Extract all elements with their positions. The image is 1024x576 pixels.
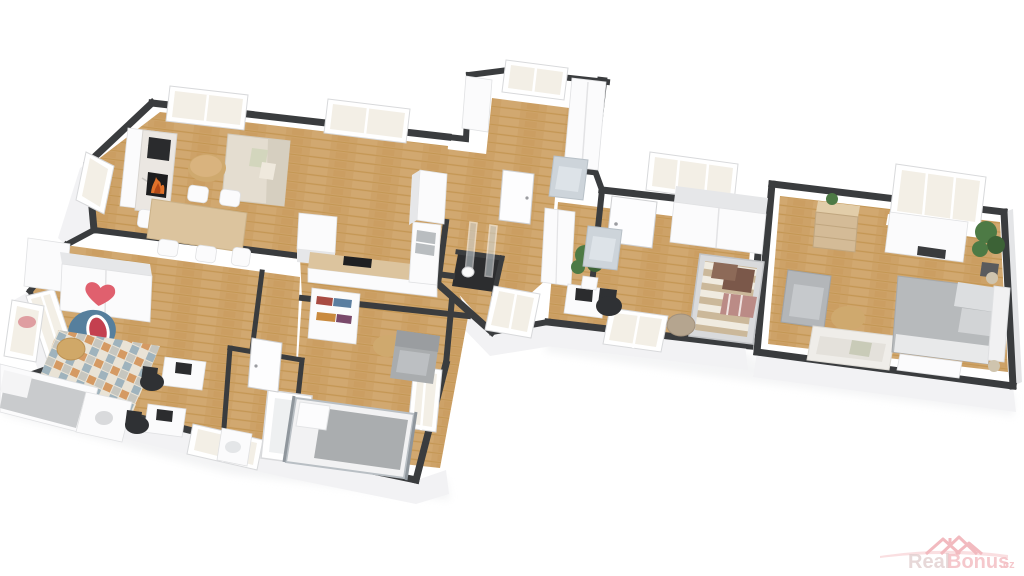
wardrobe-heart <box>60 252 152 322</box>
dresser <box>813 193 860 252</box>
foot-unit-cutout <box>95 411 113 425</box>
fridge-column-front <box>417 170 447 224</box>
watermark-brand-prefix: Real <box>908 551 950 573</box>
dining-chair <box>219 189 241 208</box>
watermark: Real Bonus .cz <box>880 537 1015 573</box>
chair-2-seat <box>125 416 149 434</box>
door-handle <box>254 364 257 367</box>
basin-bowl <box>225 441 241 453</box>
striped-daybed <box>689 254 764 344</box>
hall-door-1 <box>499 170 534 224</box>
dresser-plant <box>826 193 838 205</box>
bed-pillow <box>296 402 330 430</box>
door-handle <box>614 222 618 226</box>
armchair-cushion <box>589 236 616 262</box>
chair-1-seat <box>140 373 164 391</box>
daybed-pillow-brown2 <box>711 262 738 281</box>
wall-dressing-top <box>469 70 508 75</box>
coffee-table-top <box>190 155 222 177</box>
bathroom-door <box>248 338 282 392</box>
plant-pot <box>581 276 598 290</box>
office-monitor <box>575 288 593 302</box>
round-table <box>831 306 865 330</box>
window-dressing <box>502 60 568 100</box>
night-lamp-2 <box>988 360 1000 372</box>
double-bed <box>892 272 1010 378</box>
dresser-front <box>813 212 858 252</box>
night-lamp-1 <box>986 272 998 284</box>
dining-chair <box>231 247 251 267</box>
floorplan-canvas: Real Bonus .cz <box>0 0 1024 576</box>
stool <box>57 338 85 360</box>
sofa-pillow-green <box>849 340 872 357</box>
floral-armchair-1 <box>549 156 588 200</box>
watermark-tld: .cz <box>1000 559 1015 571</box>
tv-screen <box>147 137 171 161</box>
door-handle <box>525 196 528 199</box>
armchair-cushion <box>555 166 582 192</box>
armchair-gray <box>390 330 440 384</box>
master-armchair <box>781 270 831 328</box>
sofa-pillow-2 <box>259 162 276 180</box>
dressing-wardrobe-left <box>462 76 492 132</box>
armchair-seat <box>396 350 430 376</box>
toilet <box>462 267 474 277</box>
window-hall-bottom <box>485 286 540 338</box>
dining-chair <box>187 185 209 204</box>
pouf <box>667 314 695 336</box>
office-wardrobe <box>670 186 768 254</box>
mirror-reflection <box>18 316 36 328</box>
floorplan-svg: Real Bonus .cz <box>0 0 1024 576</box>
monitor-2 <box>156 409 173 422</box>
dining-chair <box>157 239 179 258</box>
office-chair-seat <box>596 296 622 316</box>
bookshelf <box>308 288 360 344</box>
kitchen-island-top <box>297 213 337 253</box>
monitor-1 <box>175 362 192 375</box>
master-armchair-seat <box>789 284 824 320</box>
floral-armchair-2 <box>583 226 622 270</box>
dining-chair <box>195 245 217 264</box>
